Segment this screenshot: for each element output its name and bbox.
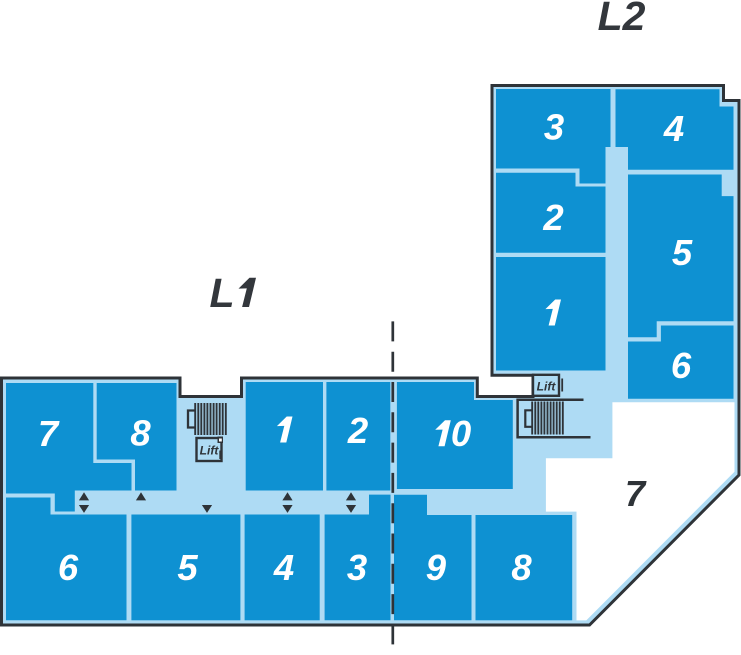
svg-text:9: 9 <box>426 547 447 588</box>
svg-text:6: 6 <box>671 345 692 386</box>
svg-text:7: 7 <box>625 473 647 514</box>
svg-text:7: 7 <box>38 413 60 454</box>
svg-text:8: 8 <box>511 547 532 588</box>
svg-text:5: 5 <box>177 547 198 588</box>
svg-text:Lift: Lift <box>537 380 557 394</box>
svg-text:6: 6 <box>58 547 79 588</box>
svg-text:3: 3 <box>544 107 564 148</box>
svg-text:0: 0 <box>451 413 471 454</box>
svg-text:L2: L2 <box>598 0 646 39</box>
svg-text:4: 4 <box>273 547 294 588</box>
svg-text:8: 8 <box>130 413 151 454</box>
svg-text:2: 2 <box>542 197 563 238</box>
svg-text:2: 2 <box>347 410 368 451</box>
svg-text:L: L <box>209 270 234 316</box>
svg-text:3: 3 <box>347 547 367 588</box>
svg-text:5: 5 <box>672 232 693 273</box>
svg-text:4: 4 <box>663 108 684 149</box>
svg-text:Lift: Lift <box>200 444 220 458</box>
